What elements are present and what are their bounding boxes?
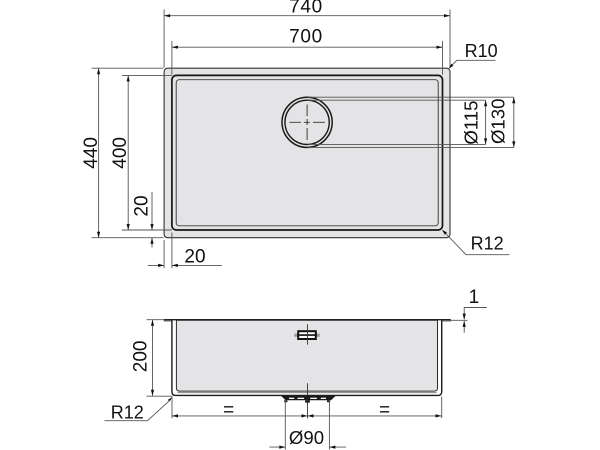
svg-text:R10: R10 (465, 41, 498, 61)
svg-text:=: = (379, 400, 390, 421)
svg-text:20: 20 (131, 195, 152, 216)
svg-text:R12: R12 (471, 234, 504, 254)
svg-text:R12: R12 (111, 403, 144, 423)
svg-text:400: 400 (110, 137, 131, 169)
svg-text:1: 1 (469, 287, 480, 308)
svg-text:20: 20 (184, 246, 205, 267)
svg-text:740: 740 (289, 0, 323, 17)
svg-text:Ø130: Ø130 (488, 99, 509, 145)
svg-text:700: 700 (289, 26, 323, 47)
svg-text:Ø115: Ø115 (460, 101, 481, 145)
svg-text:=: = (223, 400, 234, 421)
svg-text:200: 200 (130, 341, 151, 373)
svg-text:440: 440 (81, 137, 102, 169)
svg-text:Ø90: Ø90 (289, 427, 324, 448)
